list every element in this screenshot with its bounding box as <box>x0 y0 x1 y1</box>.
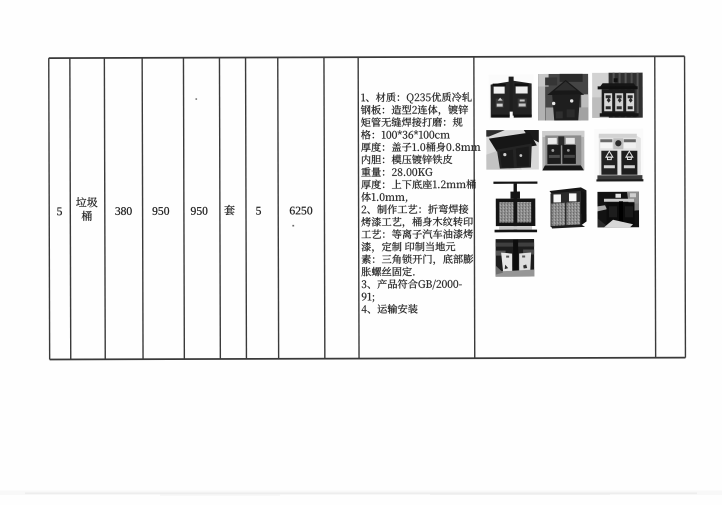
svg-text:380: 380 <box>115 205 133 218</box>
svg-text:950: 950 <box>152 205 170 218</box>
svg-text:6250: 6250 <box>289 204 312 217</box>
svg-text:950: 950 <box>190 205 208 218</box>
svg-text:5: 5 <box>57 205 63 218</box>
svg-text:5: 5 <box>256 205 262 218</box>
